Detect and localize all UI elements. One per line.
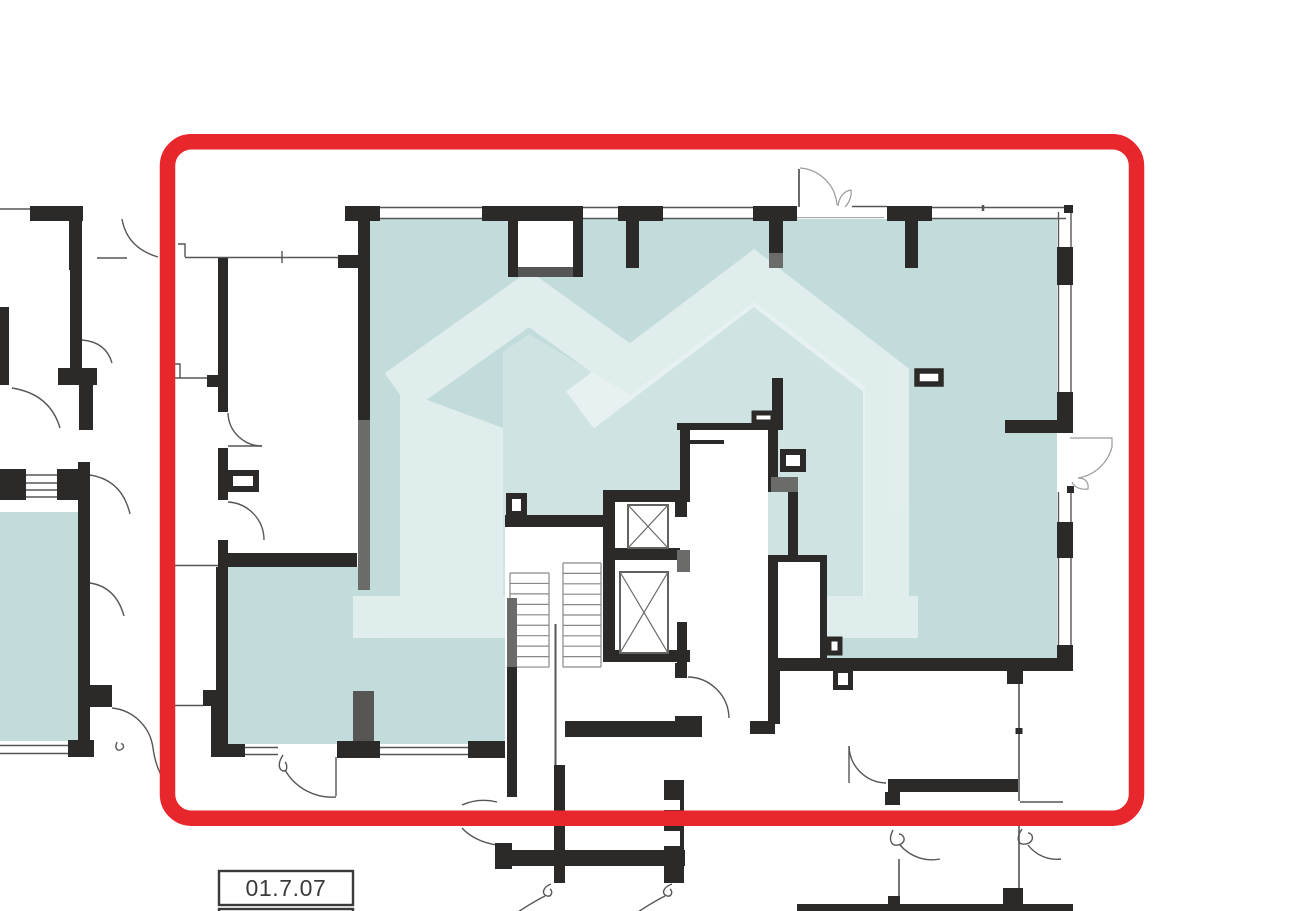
svg-text:01.7.07: 01.7.07 — [246, 875, 327, 901]
